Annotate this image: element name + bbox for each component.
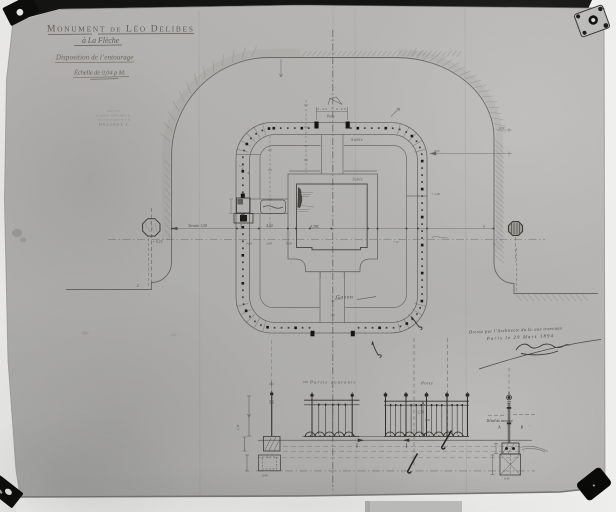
svg-text:Partie courante: Partie courante xyxy=(309,380,356,385)
svg-text:DELIBES L: DELIBES L xyxy=(99,122,129,127)
svg-text:Détail du montant: Détail du montant xyxy=(486,419,514,423)
svg-text:à La Flèche: à La Flèche xyxy=(82,36,120,45)
svg-text:Disposition de l’entourage: Disposition de l’entourage xyxy=(55,55,134,62)
svg-text:Sable: Sable xyxy=(353,178,363,182)
svg-text:Sable: Sable xyxy=(351,137,363,142)
svg-text:Porte: Porte xyxy=(420,381,433,386)
svg-text:MUSEE: MUSEE xyxy=(107,109,121,113)
svg-text:Échelle de 0,04 p M.: Échelle de 0,04 p M. xyxy=(73,69,126,77)
svg-text:A′ B′: A′ B′ xyxy=(497,425,536,430)
svg-text:FONDS DES ARCH.: FONDS DES ARCH. xyxy=(96,114,132,118)
svg-text:+ a″: + a″ xyxy=(393,240,400,244)
svg-text:Porte: Porte xyxy=(326,115,335,119)
svg-text:a: a xyxy=(483,225,485,229)
